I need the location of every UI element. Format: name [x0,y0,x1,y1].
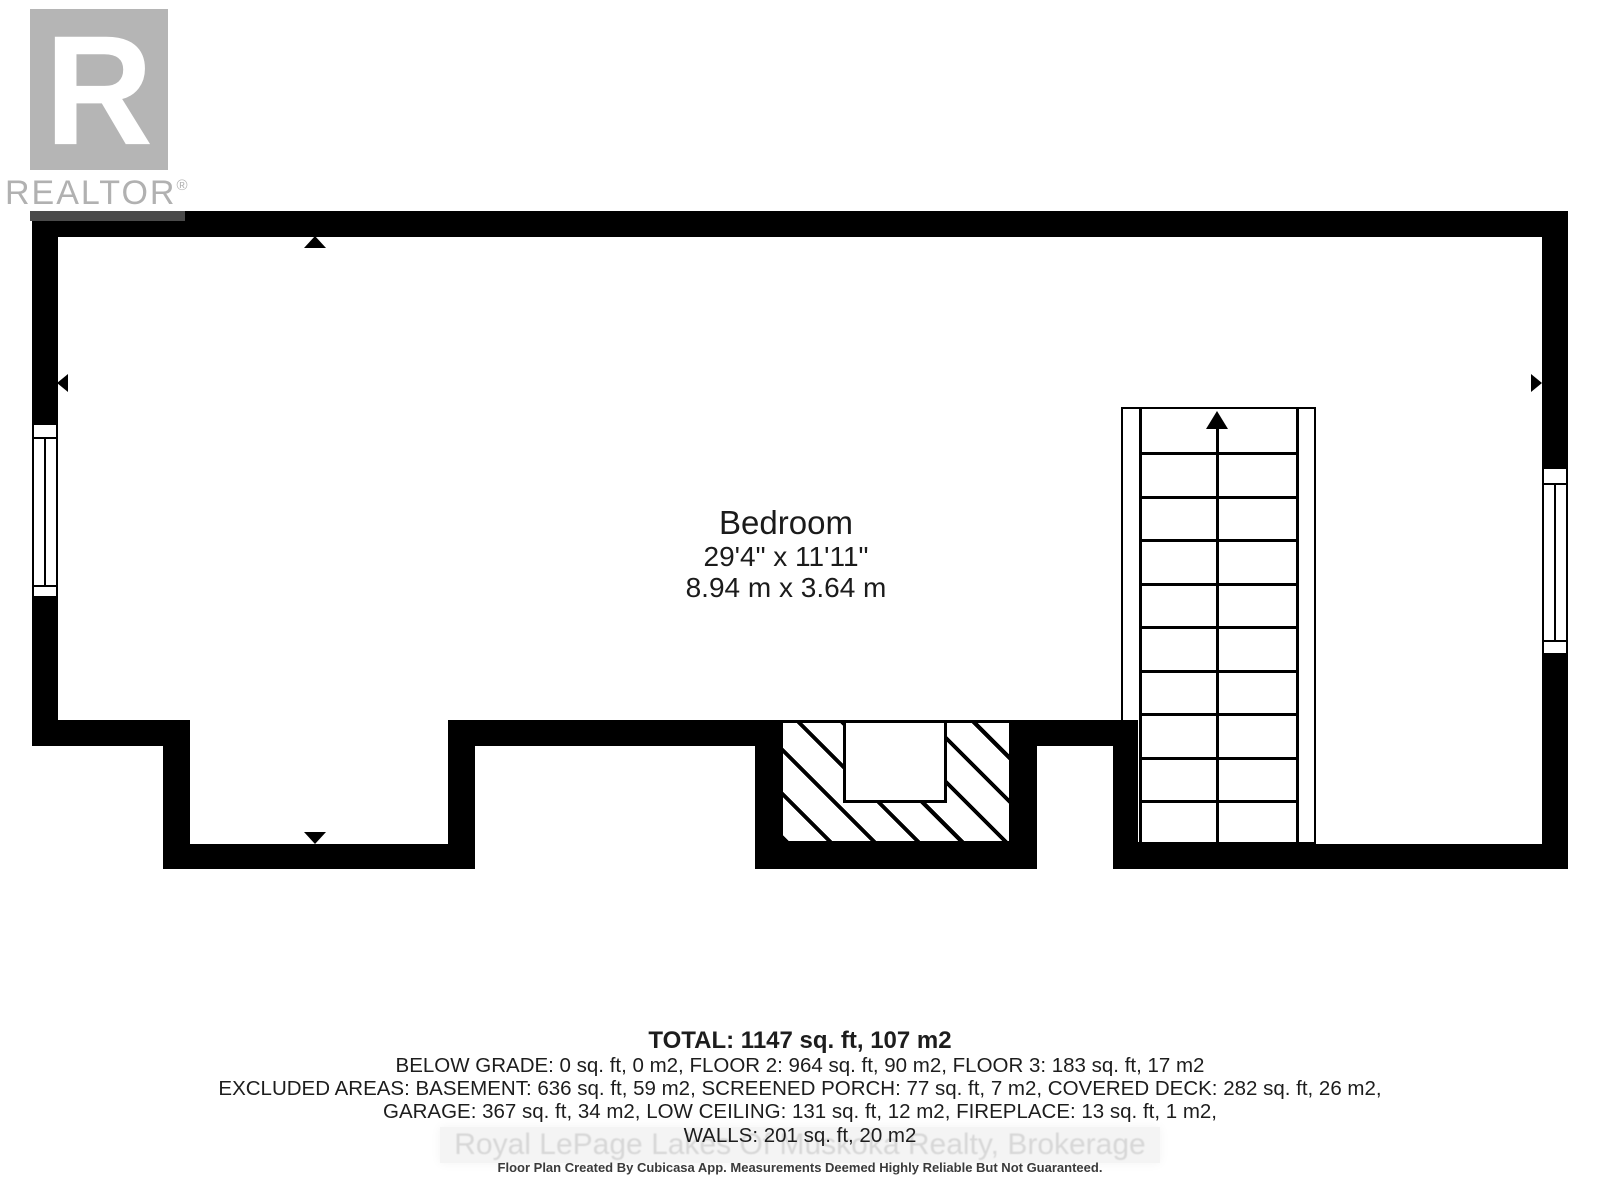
stairs-up-arrow-icon [1206,411,1228,429]
realtor-logo-letter: R [45,12,153,168]
stair-tread [1139,539,1299,542]
summary-total: TOTAL: 1147 sq. ft, 107 m2 [100,1028,1500,1054]
stair-tread [1139,496,1299,499]
wall-arrow-left-icon [57,374,68,392]
fireplace-firebox [843,720,947,803]
summary-line-below-grade: BELOW GRADE: 0 sq. ft, 0 m2, FLOOR 2: 96… [100,1054,1500,1077]
window-right [1542,467,1568,655]
wall-fireplace-bottom [755,844,1037,869]
registered-trademark-icon: ® [176,177,187,194]
wall-arrow-up-icon [304,236,326,248]
wall-top [32,211,1568,237]
realtor-logo-wordmark: REALTOR® [5,174,195,213]
room-name: Bedroom [586,505,986,541]
stairs-center-line [1216,427,1219,842]
stair-tread [1139,800,1299,803]
stair-tread [1139,670,1299,673]
stair-tread [1139,583,1299,586]
room-dimensions-metric: 8.94 m x 3.64 m [586,572,986,603]
room-label: Bedroom 29'4" x 11'11" 8.94 m x 3.64 m [586,505,986,603]
floor-plan-page: R REALTOR® [0,0,1600,1200]
summary-line-walls: WALLS: 201 sq. ft, 20 m2 [100,1124,1500,1147]
stair-tread [1139,713,1299,716]
summary-line-excluded-areas: EXCLUDED AREAS: BASEMENT: 636 sq. ft, 59… [100,1077,1500,1100]
wall-arrow-down-icon [304,832,326,844]
window-pane-line [44,437,46,587]
wall-bay-bottom [163,844,475,869]
summary-line-garage: GARAGE: 367 sq. ft, 34 m2, LOW CEILING: … [100,1100,1500,1123]
realtor-logo-icon: R [30,9,168,170]
realtor-logo-text: REALTOR [5,174,176,212]
staircase [1121,407,1316,844]
room-dimensions-imperial: 29'4" x 11'11" [586,541,986,572]
stair-tread [1139,757,1299,760]
stair-tread [1139,452,1299,455]
window-pane-line [1554,483,1556,642]
wall-arrow-right-icon [1531,374,1542,392]
area-summary: TOTAL: 1147 sq. ft, 107 m2 BELOW GRADE: … [100,1028,1500,1147]
wall-bottom-right [1113,844,1568,869]
disclaimer-text: Floor Plan Created By Cubicasa App. Meas… [100,1160,1500,1175]
wall-bottom-mid [448,720,780,746]
wall-bottom-mid-right [1012,720,1138,746]
window-left [32,423,58,598]
stair-tread [1139,626,1299,629]
